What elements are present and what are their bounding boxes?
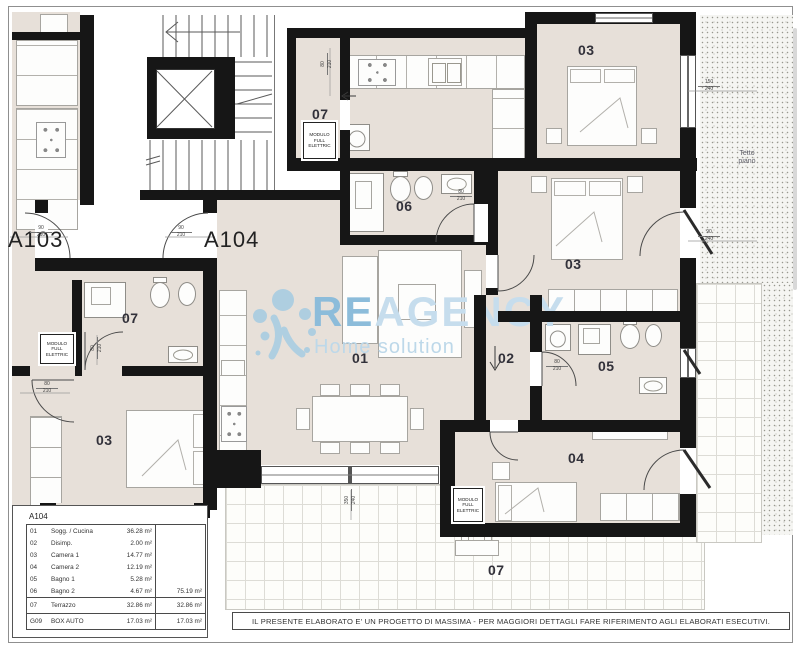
oven-symbol	[221, 360, 245, 376]
legend-total	[155, 561, 205, 573]
wall	[35, 200, 48, 213]
terrace-right	[696, 283, 762, 543]
toilet-tank	[393, 171, 408, 177]
wall	[12, 366, 30, 376]
single-bed-symbol	[495, 482, 577, 522]
sink-bowl	[173, 349, 193, 360]
shower-tray	[583, 328, 599, 343]
window	[680, 348, 696, 378]
pillow	[570, 69, 601, 83]
legend-area: 2.00 m²	[109, 540, 155, 547]
nightstand-symbol	[546, 128, 562, 144]
wardrobe-symbol	[600, 493, 680, 521]
watermark-logo-icon	[250, 284, 320, 368]
dim-bot: 210	[98, 337, 104, 359]
wall	[48, 258, 215, 271]
watermark-brand-bold: RE	[312, 288, 374, 335]
dim-bagno2-door: 80210	[450, 190, 472, 202]
chair-symbol	[320, 384, 340, 396]
legend-area: 14.77 m²	[109, 552, 155, 559]
modulo-full-elettric-box: MODULO FULL ELETTRIC	[40, 334, 74, 364]
sink-symbol	[168, 346, 198, 363]
wall	[474, 295, 486, 432]
chair-symbol	[350, 384, 370, 396]
bidet-symbol	[178, 282, 196, 306]
chair-symbol	[320, 442, 340, 454]
legend-code: 07	[27, 602, 51, 609]
dim-bot: 210	[30, 233, 52, 239]
door-opening	[340, 100, 350, 130]
dim-entry-a104: 90210	[170, 226, 192, 238]
legend-total	[155, 525, 205, 537]
external-unit-symbol	[455, 540, 499, 556]
legend-row: 03Camera 114.77 m²	[27, 549, 205, 561]
dim-camera-a103-door: 80210	[36, 382, 58, 394]
disclaimer-bar: IL PRESENTE ELABORATO E' UN PROGETTO DI …	[232, 612, 790, 630]
legend-name: Disimp.	[51, 540, 109, 547]
stove-symbol	[358, 59, 396, 86]
room-label-01: 01	[352, 350, 369, 366]
flat-roof-top-right	[700, 15, 793, 283]
wall	[340, 165, 350, 245]
room-label-07-balcony: 07	[312, 106, 329, 122]
wall	[80, 15, 94, 205]
door-opening	[490, 420, 518, 432]
kitchen-counter-symbol	[16, 40, 78, 106]
wall	[203, 270, 217, 510]
legend-row: 05Bagno 15.28 m²	[27, 573, 205, 585]
dim-bot: 210	[328, 53, 334, 75]
toilet-tank	[153, 277, 167, 283]
dim-bot: 210	[36, 389, 58, 395]
sheet-edge-strip	[793, 28, 797, 290]
room-label-03: 03	[565, 256, 582, 272]
kitchen-counter-symbol	[492, 89, 525, 159]
legend-row: 04Camera 212.19 m²	[27, 561, 205, 573]
unit-label-a104: A104	[204, 227, 259, 253]
legend-total	[155, 549, 205, 561]
double-bed-symbol	[126, 410, 208, 488]
modulo-line: ELETTRIC	[454, 508, 482, 513]
dim-bagno-a103-door: 80210	[91, 337, 103, 359]
wall	[287, 28, 537, 38]
legend-code: 05	[27, 576, 51, 583]
dim-window-living: 350240	[345, 489, 357, 511]
wall	[440, 523, 696, 537]
nightstand-symbol	[531, 176, 547, 193]
chair-symbol	[410, 408, 424, 430]
legend-area: 12.19 m²	[109, 564, 155, 571]
room-label-06: 06	[396, 198, 413, 214]
room-label-02: 02	[498, 350, 515, 366]
shower-tray	[91, 287, 111, 305]
modulo-full-elettric-box: MODULO FULL ELETTRIC	[303, 122, 336, 159]
wall	[498, 311, 680, 322]
pillow	[498, 485, 512, 521]
flat-roof-label-line2: piano	[738, 158, 755, 165]
dim-bot: 210	[546, 367, 568, 373]
shower-symbol	[84, 282, 126, 318]
dim-bot: 240	[352, 489, 358, 511]
door-opening	[474, 204, 488, 242]
legend-area: 36.28 m²	[109, 528, 155, 535]
window	[595, 13, 653, 23]
chair-symbol	[350, 442, 370, 454]
wardrobe-symbol	[30, 416, 62, 508]
washer-drum	[348, 130, 365, 147]
room-label-03-top: 03	[578, 42, 595, 58]
toilet-symbol	[620, 324, 640, 349]
legend-area: 4.67 m²	[109, 588, 155, 595]
legend-total: 75.19 m²	[155, 585, 205, 597]
double-bed-symbol	[567, 66, 637, 146]
legend-code: 02	[27, 540, 51, 547]
sink-bowl	[447, 63, 461, 83]
legend-total: 17.03 m²	[155, 614, 205, 629]
double-bed-symbol	[551, 178, 623, 260]
legend-total: 32.86 m²	[155, 598, 205, 613]
wall	[680, 128, 696, 208]
wall	[203, 200, 217, 213]
legend-code: 03	[27, 552, 51, 559]
legend-row: 02Disimp.2.00 m²	[27, 537, 205, 549]
room-label-07-a103: 07	[122, 310, 139, 326]
dim-bot: 240	[698, 87, 720, 93]
chair-symbol	[380, 442, 400, 454]
modulo-line: ELETTRIC	[41, 352, 73, 357]
dim-bot: 210	[450, 197, 472, 203]
dining-table-symbol	[312, 396, 408, 442]
dim-door-camera1: 90240	[698, 230, 720, 242]
dim-window-camera-top: 150240	[698, 80, 720, 92]
wall	[122, 366, 203, 376]
legend-row: 01Sogg. / Cucina36.28 m²	[27, 525, 205, 537]
bidet-symbol	[414, 176, 433, 200]
flat-roof-right-strip	[762, 283, 793, 535]
sink-bowl	[432, 63, 446, 83]
wall	[680, 12, 696, 57]
room-label-07-terrace: 07	[488, 562, 505, 578]
elevator-cab	[156, 69, 215, 129]
wall	[680, 378, 696, 448]
dim-bagno1-door: 80210	[546, 360, 568, 372]
legend-title: A104	[29, 512, 48, 521]
legend-panel: A104 01Sogg. / Cucina36.28 m² 02Disimp.2…	[12, 505, 208, 638]
sink-double-symbol	[428, 58, 462, 86]
room-label-04: 04	[568, 450, 585, 466]
wall	[217, 450, 261, 488]
wall	[287, 38, 296, 171]
room-label-05: 05	[598, 358, 615, 374]
wall	[35, 258, 48, 271]
legend-code: 01	[27, 528, 51, 535]
dim-balcony-door: 80210	[321, 53, 333, 75]
door-opening	[486, 255, 498, 288]
legend-area: 32.86 m²	[109, 602, 155, 609]
toilet-symbol	[150, 282, 170, 308]
dim-entry-a103: 90210	[30, 226, 52, 238]
stove-symbol	[36, 122, 66, 158]
terrace-door-opening	[680, 448, 696, 494]
legend-total	[155, 537, 205, 549]
legend-code: 04	[27, 564, 51, 571]
watermark-tagline: Home solution	[314, 336, 455, 359]
nightstand-symbol	[627, 176, 643, 193]
legend-row: 06Bagno 24.67 m²75.19 m²	[27, 585, 205, 597]
legend-total	[155, 573, 205, 585]
wall	[680, 258, 696, 348]
wall	[12, 32, 80, 40]
window	[680, 55, 696, 128]
legend-name: Terrazzo	[51, 602, 109, 609]
legend-area: 17.03 m²	[109, 618, 155, 625]
legend-name: Camera 1	[51, 552, 109, 559]
sliding-window	[261, 466, 439, 484]
pillow	[554, 181, 586, 196]
nightstand-symbol	[641, 128, 657, 144]
modulo-line: ELETTRIC	[304, 143, 335, 148]
nightstand-symbol	[492, 462, 510, 480]
legend-name: Bagno 1	[51, 576, 109, 583]
legend-code: 06	[27, 588, 51, 595]
legend-name: Bagno 2	[51, 588, 109, 595]
legend-area: 5.28 m²	[109, 576, 155, 583]
pillow	[604, 69, 635, 83]
floor-plan-sheet: REAGENCY Home solution	[0, 0, 800, 649]
shower-tray	[355, 181, 372, 209]
room-label-03-a103: 03	[96, 432, 113, 448]
shower-symbol	[349, 173, 384, 232]
wall	[140, 190, 345, 200]
shower-symbol	[578, 324, 611, 355]
legend-name: BOX AUTO	[51, 618, 109, 625]
flat-roof-label-line1: Tetto	[739, 150, 754, 157]
pillow	[589, 181, 621, 196]
bidet-symbol	[645, 324, 662, 347]
dim-bot: 240	[698, 237, 720, 243]
door-opening	[530, 352, 542, 386]
chair-symbol	[296, 408, 310, 430]
chair-symbol	[380, 384, 400, 396]
wall	[486, 288, 498, 295]
wall	[530, 295, 542, 352]
wall	[525, 12, 537, 158]
terrace-door-opening	[680, 208, 696, 258]
legend-row: 07Terrazzo32.86 m²32.86 m²	[27, 597, 205, 613]
wall	[75, 366, 82, 376]
dim-bot: 210	[170, 233, 192, 239]
legend-name: Camera 2	[51, 564, 109, 571]
wall	[340, 235, 486, 245]
wall	[440, 420, 490, 432]
legend-name: Sogg. / Cucina	[51, 528, 109, 535]
sink-symbol	[639, 377, 667, 394]
flat-roof-label: Tetto piano	[722, 150, 772, 166]
wall	[518, 420, 680, 432]
modulo-full-elettric-box: MODULO FULL ELETTRIC	[453, 488, 483, 522]
legend-code: G09	[27, 618, 51, 625]
legend-row: G09BOX AUTO17.03 m²17.03 m²	[27, 613, 205, 629]
legend-table: 01Sogg. / Cucina36.28 m² 02Disimp.2.00 m…	[26, 524, 206, 630]
sink-bowl	[644, 380, 663, 391]
stove-symbol	[221, 406, 247, 442]
wall	[340, 38, 350, 100]
